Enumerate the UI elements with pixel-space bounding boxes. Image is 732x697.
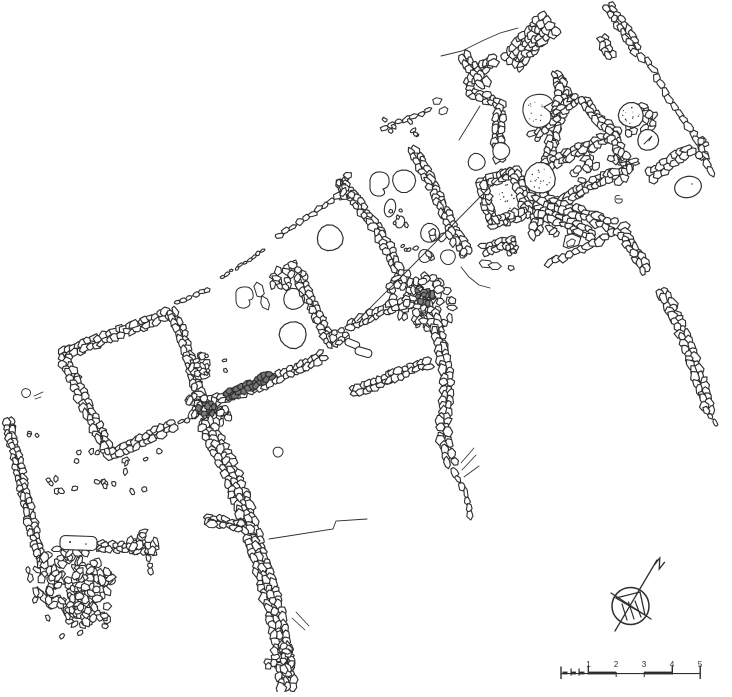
svg-text:5: 5 — [698, 660, 703, 669]
svg-text:2: 2 — [614, 660, 619, 669]
svg-text:1: 1 — [586, 660, 591, 669]
svg-text:4: 4 — [670, 660, 675, 669]
svg-text:3: 3 — [642, 660, 647, 669]
